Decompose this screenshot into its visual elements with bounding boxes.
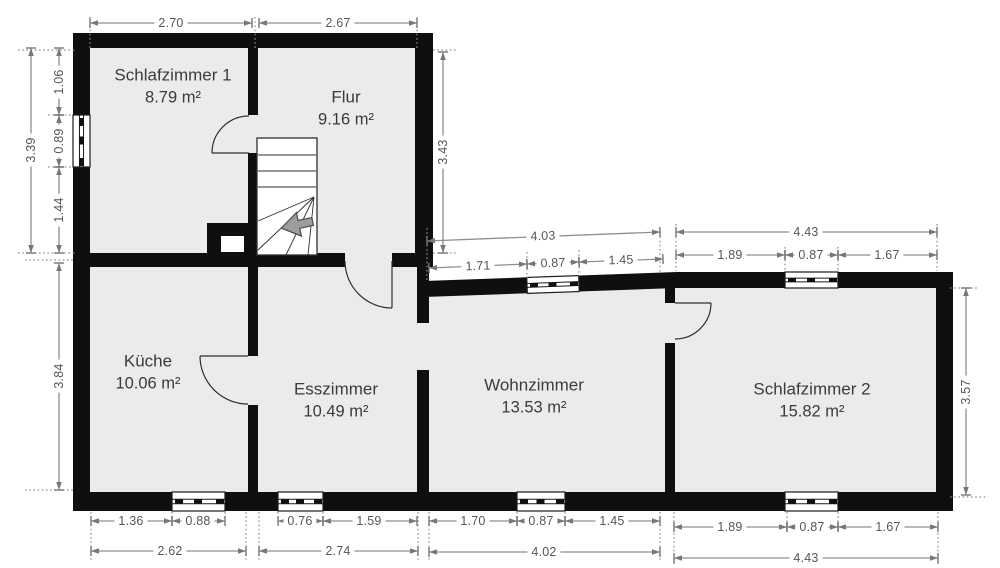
wall-top <box>73 33 433 48</box>
room-name: Flur <box>318 86 374 109</box>
stairs <box>257 138 317 255</box>
dim-wohnzimmer-bottom-seg1: 1.70 <box>456 514 489 528</box>
room-label-schlafzimmer2: Schlafzimmer 2 15.82 m² <box>753 378 870 423</box>
wall-bottom-e <box>838 492 953 511</box>
dim-left-seg1: 1.06 <box>52 65 66 98</box>
room-area: 10.06 m² <box>115 373 180 395</box>
wall-middle-b <box>392 253 433 267</box>
dim-schlafzimmer2-bottom-seg2: 0.87 <box>795 520 828 534</box>
dim-esszimmer-bottom-total: 2.74 <box>321 544 354 558</box>
wall-wohnzimmer-schlafzimmer2-b <box>665 343 675 492</box>
room-name: Esszimmer <box>294 378 378 401</box>
dim-left-seg3: 1.44 <box>52 193 66 226</box>
room-floors <box>90 48 938 492</box>
dim-kueche-height: 3.84 <box>52 359 66 392</box>
window <box>73 115 90 167</box>
wall-left-lower <box>73 167 90 511</box>
room-label-wohnzimmer: Wohnzimmer 13.53 m² <box>484 374 584 419</box>
dim-wohnzimmer-bottom-seg3: 1.45 <box>595 514 628 528</box>
wall-bottom-b <box>225 492 278 511</box>
wall-flur-right <box>415 33 433 267</box>
dim-wohnzimmer-top-seg1: 1.71 <box>461 258 495 273</box>
room-label-schlafzimmer1: Schlafzimmer 1 8.79 m² <box>114 64 231 109</box>
chimney-flue <box>221 236 244 252</box>
dim-schlafzimmer2-bottom-seg3: 1.67 <box>871 520 904 534</box>
room-area: 13.53 m² <box>484 397 584 419</box>
wall-wohnzimmer-schlafzimmer2-a <box>665 288 675 303</box>
room-area: 8.79 m² <box>114 87 231 109</box>
wall-bottom-d <box>565 492 785 511</box>
dim-schlafzimmer2-bottom-total: 4.43 <box>789 551 822 565</box>
wall-schlafzimmer2-top-a <box>677 272 785 288</box>
wall-schlafzimmer2-top-b <box>838 272 953 288</box>
wall-kueche-esszimmer-a <box>248 267 258 356</box>
window <box>785 272 838 288</box>
window <box>278 492 323 511</box>
dim-kueche-bottom-seg1: 1.36 <box>114 514 147 528</box>
room-label-flur: Flur 9.16 m² <box>318 86 374 131</box>
dim-schlafzimmer2-height: 3.57 <box>959 375 973 408</box>
dim-wohnzimmer-top-seg2: 0.87 <box>536 255 570 270</box>
dim-schlafzimmer2-top-seg2: 0.87 <box>794 248 827 262</box>
room-label-esszimmer: Esszimmer 10.49 m² <box>294 378 378 423</box>
dim-wohnzimmer-top-total: 4.03 <box>526 228 560 243</box>
room-area: 9.16 m² <box>318 109 374 131</box>
wall-right <box>936 272 953 511</box>
dim-schlafzimmer2-top-seg1: 1.89 <box>713 248 746 262</box>
window <box>517 492 565 511</box>
dim-esszimmer-bottom-seg1: 0.76 <box>283 514 316 528</box>
room-name: Schlafzimmer 1 <box>114 64 231 87</box>
wall-esszimmer-right-b <box>417 370 429 492</box>
dim-esszimmer-bottom-seg2: 1.59 <box>352 514 385 528</box>
dim-kueche-bottom-total: 2.62 <box>153 544 186 558</box>
room-label-kueche: Küche 10.06 m² <box>115 350 180 395</box>
dim-left-total: 3.39 <box>24 133 38 166</box>
window <box>527 276 580 294</box>
wall-schlafzimmer1-flur-a <box>248 48 258 115</box>
dim-wohnzimmer-bottom-total: 4.02 <box>527 545 560 559</box>
dim-flur-width: 2.67 <box>321 16 354 30</box>
room-name: Wohnzimmer <box>484 374 584 397</box>
dim-schlafzimmer1-width: 2.70 <box>154 16 187 30</box>
dim-kueche-bottom-seg2: 0.88 <box>181 514 214 528</box>
room-area: 15.82 m² <box>753 401 870 423</box>
dim-wohnzimmer-bottom-seg2: 0.87 <box>524 514 557 528</box>
dim-left-seg2: 0.89 <box>52 124 66 157</box>
wall-left-upper <box>73 33 90 115</box>
floor-plan: Schlafzimmer 1 8.79 m² Flur 9.16 m² Küch… <box>0 0 1000 568</box>
wall-kueche-esszimmer-b <box>248 405 258 492</box>
dim-wohnzimmer-top-seg3: 1.45 <box>604 252 638 267</box>
dim-flur-height: 3.43 <box>436 135 450 168</box>
window <box>785 492 838 511</box>
room-name: Schlafzimmer 2 <box>753 378 870 401</box>
room-name: Küche <box>115 350 180 373</box>
wall-bottom-a <box>73 492 172 511</box>
dim-schlafzimmer2-top-seg3: 1.67 <box>870 248 903 262</box>
room-area: 10.49 m² <box>294 401 378 423</box>
wall-bottom-c <box>323 492 517 511</box>
window <box>172 492 225 511</box>
dim-schlafzimmer2-top-total: 4.43 <box>789 225 822 239</box>
dim-schlafzimmer2-bottom-seg1: 1.89 <box>713 520 746 534</box>
